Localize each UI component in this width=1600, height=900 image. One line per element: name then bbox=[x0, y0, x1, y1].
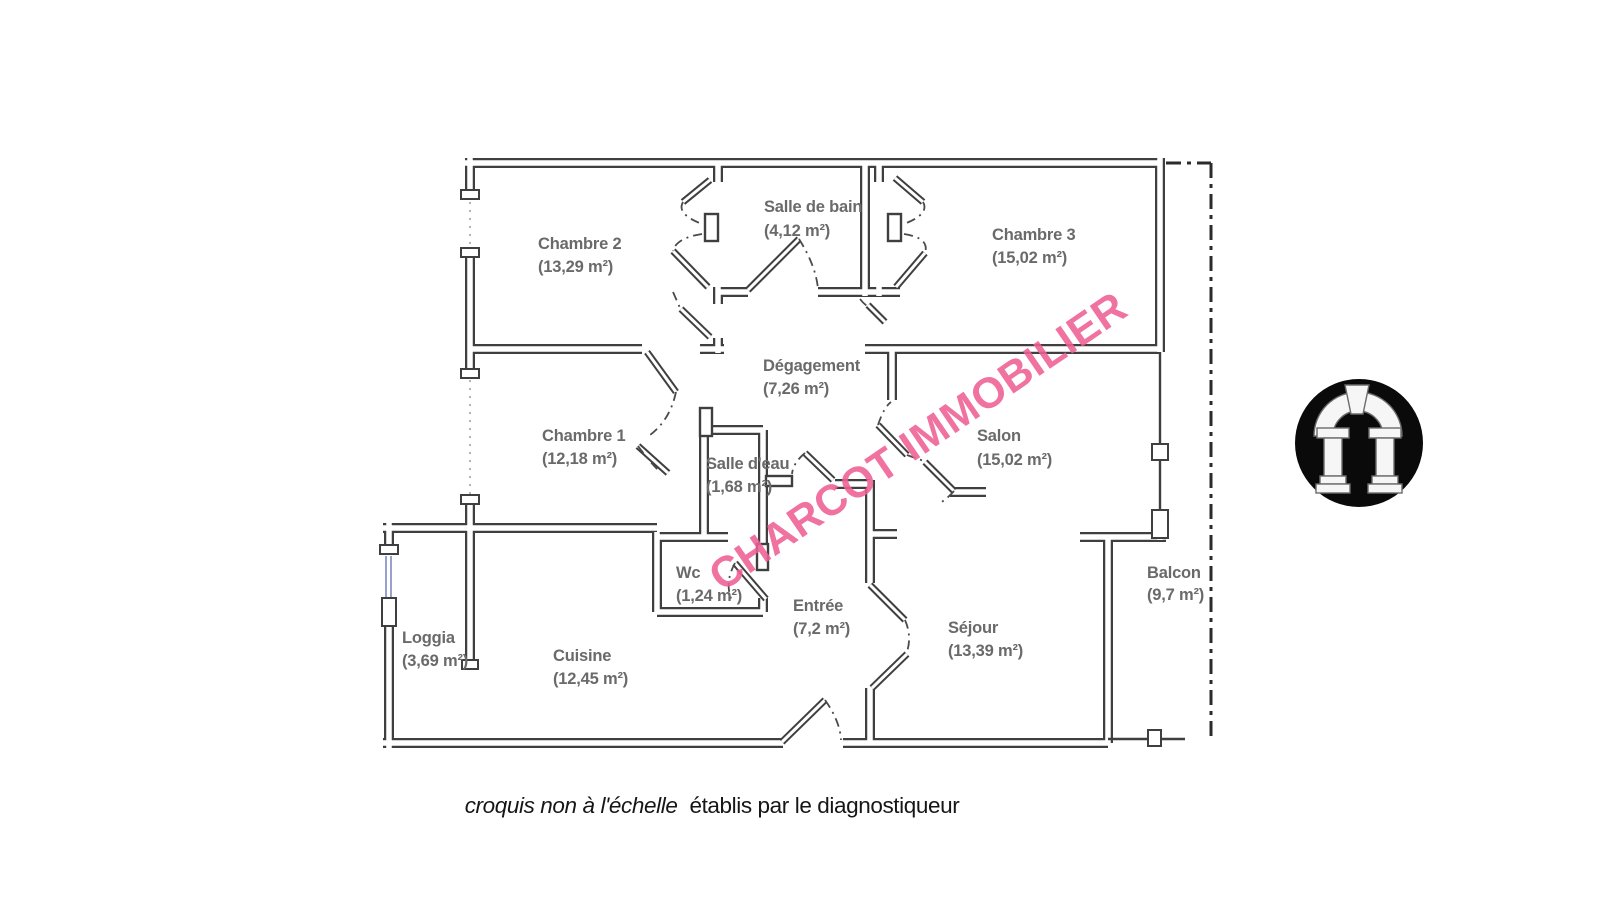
room-area-salle-de-bain: (4,12 m²) bbox=[764, 222, 830, 240]
room-labels: Chambre 2 (13,29 m²) Salle de bain (4,12… bbox=[402, 198, 1204, 688]
room-area-degagement: (7,26 m²) bbox=[763, 380, 829, 398]
room-label-balcon: Balcon bbox=[1147, 564, 1201, 582]
logo-left-column bbox=[1324, 438, 1342, 476]
logo-right-base-lower bbox=[1368, 484, 1402, 493]
room-label-degagement: Dégagement bbox=[763, 357, 861, 375]
logo-right-column bbox=[1376, 438, 1394, 476]
room-area-sejour: (13,39 m²) bbox=[948, 642, 1023, 660]
logo-right-base-upper bbox=[1372, 476, 1398, 484]
room-area-entree: (7,2 m²) bbox=[793, 620, 850, 638]
room-area-cuisine: (12,45 m²) bbox=[553, 670, 628, 688]
floor-plan-canvas: Chambre 2 (13,29 m²) Salle de bain (4,12… bbox=[0, 0, 1600, 900]
room-label-chambre-1: Chambre 1 bbox=[542, 427, 626, 445]
room-label-chambre-2: Chambre 2 bbox=[538, 235, 622, 253]
arch-logo-icon bbox=[1295, 379, 1423, 507]
caption-regular-part: établis par le diagnostiqueur bbox=[689, 793, 960, 818]
room-area-chambre-2: (13,29 m²) bbox=[538, 258, 613, 276]
room-area-salon: (15,02 m²) bbox=[977, 451, 1052, 469]
room-area-loggia: (3,69 m²) bbox=[402, 652, 468, 670]
room-label-cuisine: Cuisine bbox=[553, 647, 611, 665]
logo-left-capital bbox=[1317, 428, 1349, 438]
room-label-loggia: Loggia bbox=[402, 629, 456, 647]
caption: croquis non à l'échelleétablis par le di… bbox=[465, 793, 960, 818]
floor-plan-page: Chambre 2 (13,29 m²) Salle de bain (4,12… bbox=[0, 0, 1600, 900]
room-label-salle-d-eau: Salle d'eau bbox=[706, 455, 789, 473]
room-area-salle-d-eau: (1,68 m²) bbox=[706, 478, 772, 496]
logo-left-base-upper bbox=[1320, 476, 1346, 484]
room-label-chambre-3: Chambre 3 bbox=[992, 226, 1076, 244]
room-label-wc: Wc bbox=[676, 564, 700, 582]
logo-right-capital bbox=[1369, 428, 1401, 438]
room-label-salon: Salon bbox=[977, 427, 1021, 445]
caption-italic-part: croquis non à l'échelle bbox=[465, 793, 678, 818]
room-area-chambre-3: (15,02 m²) bbox=[992, 249, 1067, 267]
room-label-salle-de-bain: Salle de bain bbox=[764, 198, 862, 216]
room-area-balcon: (9,7 m²) bbox=[1147, 586, 1204, 604]
logo-left-base-lower bbox=[1316, 484, 1350, 493]
room-label-sejour: Séjour bbox=[948, 619, 999, 637]
room-label-entree: Entrée bbox=[793, 597, 843, 615]
room-area-chambre-1: (12,18 m²) bbox=[542, 450, 617, 468]
